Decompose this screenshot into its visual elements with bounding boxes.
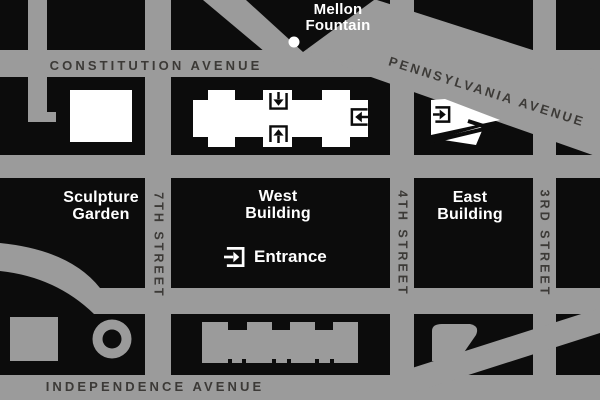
entrance-legend: Entrance (224, 246, 327, 268)
fourth-street-label: 4TH STREET (395, 179, 410, 309)
sculpture-garden-pavilion-building (70, 90, 132, 142)
west-building-label-line1: West (218, 188, 338, 205)
legend-entrance-icon (224, 246, 246, 268)
entrance-legend-label: Entrance (254, 247, 327, 267)
west-entrance-up-icon (267, 125, 290, 143)
west-entrance-down-icon (267, 92, 290, 110)
west-entrance-left-icon (349, 106, 369, 128)
sculpture-garden-label-line2: Garden (41, 206, 161, 223)
mellon-fountain-label-line1: Mellon (288, 2, 388, 18)
sculpture-garden-label-line1: Sculpture (41, 189, 161, 206)
west-building-label: West Building (218, 188, 338, 222)
mellon-fountain-dot (289, 37, 300, 48)
east-building-label: East Building (410, 189, 530, 223)
madison-drive-road (0, 155, 600, 178)
air-and-space-building (202, 322, 358, 363)
east-building-label-line1: East (410, 189, 530, 206)
east-building-label-line2: Building (410, 206, 530, 223)
hirshhorn-museum-courtyard (103, 330, 122, 349)
constitution-avenue-label: CONSTITUTION AVENUE (10, 58, 302, 73)
sculpture-garden-label: Sculpture Garden (41, 189, 161, 223)
hirshhorn-garden-building (10, 317, 58, 361)
mellon-fountain-label-line2: Fountain (288, 18, 388, 34)
independence-avenue-label: INDEPENDENCE AVENUE (9, 379, 301, 394)
mellon-fountain-label: Mellon Fountain (288, 2, 388, 34)
east-entrance-right-icon (433, 105, 452, 124)
west-building-label-line2: Building (218, 205, 338, 222)
street-map: CONSTITUTION AVENUE PENNSYLVANIA AVENUE … (0, 0, 600, 400)
third-street-label: 3RD STREET (537, 179, 552, 309)
ninth-street-stub (45, 112, 56, 122)
